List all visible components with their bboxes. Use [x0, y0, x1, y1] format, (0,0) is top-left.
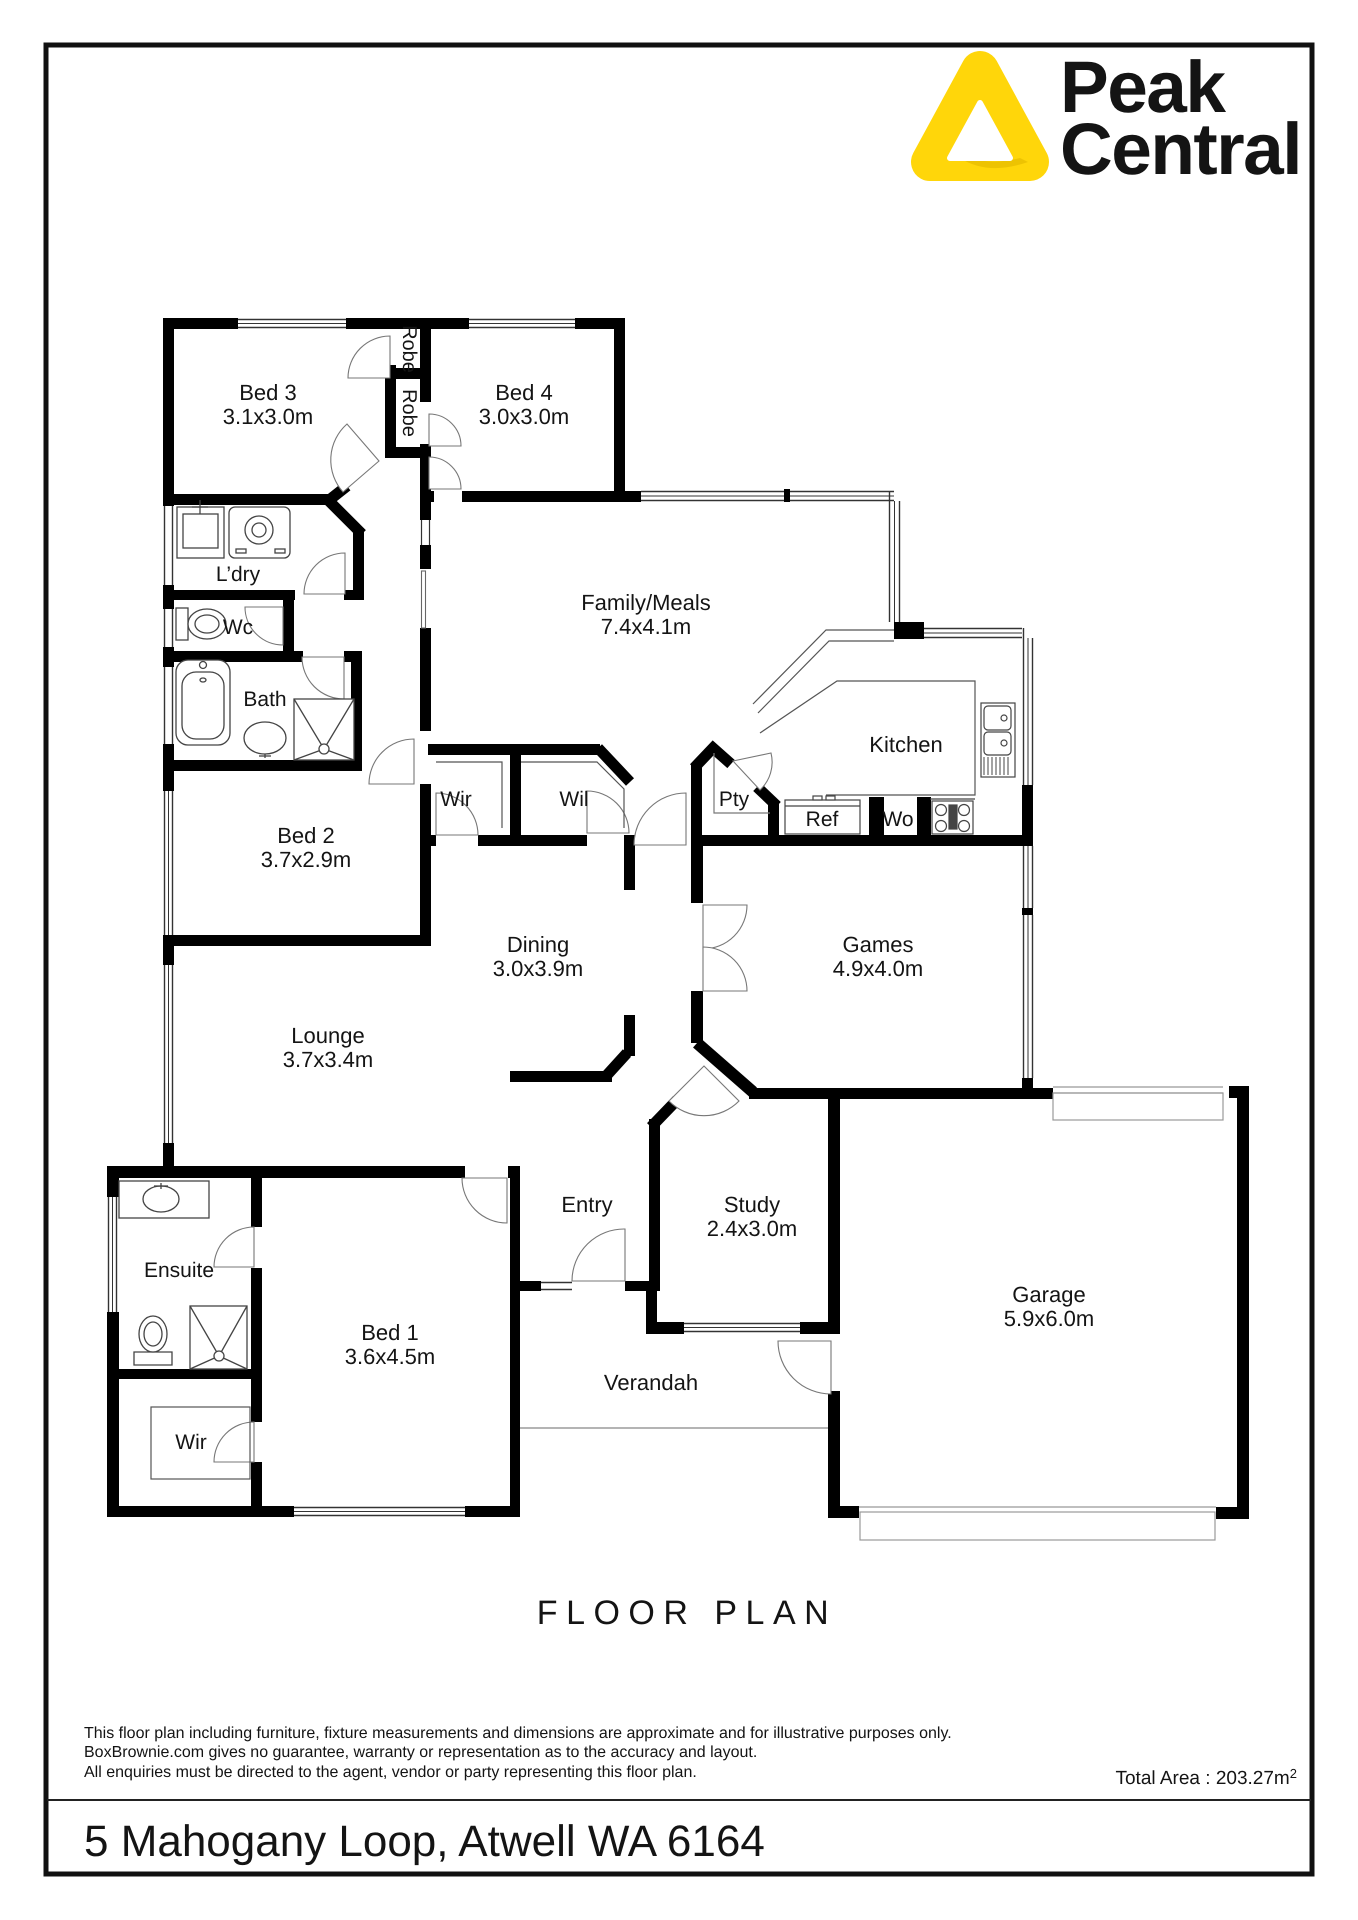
- svg-text:Kitchen: Kitchen: [869, 732, 942, 757]
- svg-text:Ref: Ref: [806, 808, 839, 831]
- svg-text:Bed 1: Bed 1: [361, 1320, 419, 1345]
- svg-text:Robe: Robe: [398, 325, 420, 373]
- svg-text:Entry: Entry: [561, 1192, 612, 1217]
- svg-text:Total Area : 203.27m2: Total Area : 203.27m2: [1115, 1766, 1297, 1789]
- svg-text:3.7x3.4m: 3.7x3.4m: [283, 1047, 374, 1072]
- svg-text:Verandah: Verandah: [604, 1370, 698, 1395]
- svg-text:7.4x4.1m: 7.4x4.1m: [601, 614, 692, 639]
- svg-text:Family/Meals: Family/Meals: [581, 590, 711, 615]
- svg-text:Central: Central: [1060, 109, 1301, 190]
- svg-text:Wil: Wil: [559, 788, 588, 811]
- svg-text:Pty: Pty: [719, 788, 750, 811]
- svg-text:Ensuite: Ensuite: [144, 1259, 214, 1282]
- svg-text:3.1x3.0m: 3.1x3.0m: [223, 404, 314, 429]
- svg-text:2.4x3.0m: 2.4x3.0m: [707, 1216, 798, 1241]
- svg-text:Study: Study: [724, 1192, 780, 1217]
- svg-text:4.9x4.0m: 4.9x4.0m: [833, 956, 924, 981]
- svg-text:All enquiries must be directed: All enquiries must be directed to the ag…: [84, 1764, 697, 1781]
- svg-text:Bed 2: Bed 2: [277, 823, 335, 848]
- svg-text:3.6x4.5m: 3.6x4.5m: [345, 1344, 436, 1369]
- svg-text:5.9x6.0m: 5.9x6.0m: [1004, 1306, 1095, 1331]
- svg-text:This floor plan including furn: This floor plan including furniture, fix…: [84, 1725, 952, 1742]
- svg-text:Wir: Wir: [440, 788, 471, 811]
- svg-text:3.0x3.9m: 3.0x3.9m: [493, 956, 584, 981]
- svg-text:Robe: Robe: [398, 389, 420, 437]
- svg-text:Bath: Bath: [243, 688, 286, 711]
- svg-text:Dining: Dining: [507, 932, 569, 957]
- svg-text:Wir: Wir: [175, 1431, 206, 1454]
- svg-text:Lounge: Lounge: [291, 1023, 364, 1048]
- svg-text:Bed 3: Bed 3: [239, 380, 297, 405]
- svg-text:3.7x2.9m: 3.7x2.9m: [261, 847, 352, 872]
- svg-text:Wc: Wc: [223, 616, 253, 639]
- svg-text:FLOOR PLAN: FLOOR PLAN: [537, 1594, 837, 1632]
- svg-text:L’dry: L’dry: [216, 563, 261, 586]
- svg-text:BoxBrownie.com gives no guaran: BoxBrownie.com gives no guarantee, warra…: [84, 1744, 757, 1761]
- svg-text:Garage: Garage: [1012, 1282, 1085, 1307]
- svg-text:3.0x3.0m: 3.0x3.0m: [479, 404, 570, 429]
- svg-text:Games: Games: [843, 932, 914, 957]
- svg-text:5 Mahogany Loop, Atwell WA 616: 5 Mahogany Loop, Atwell WA 6164: [84, 1817, 765, 1866]
- svg-text:Bed 4: Bed 4: [495, 380, 553, 405]
- svg-text:Wo: Wo: [882, 808, 913, 831]
